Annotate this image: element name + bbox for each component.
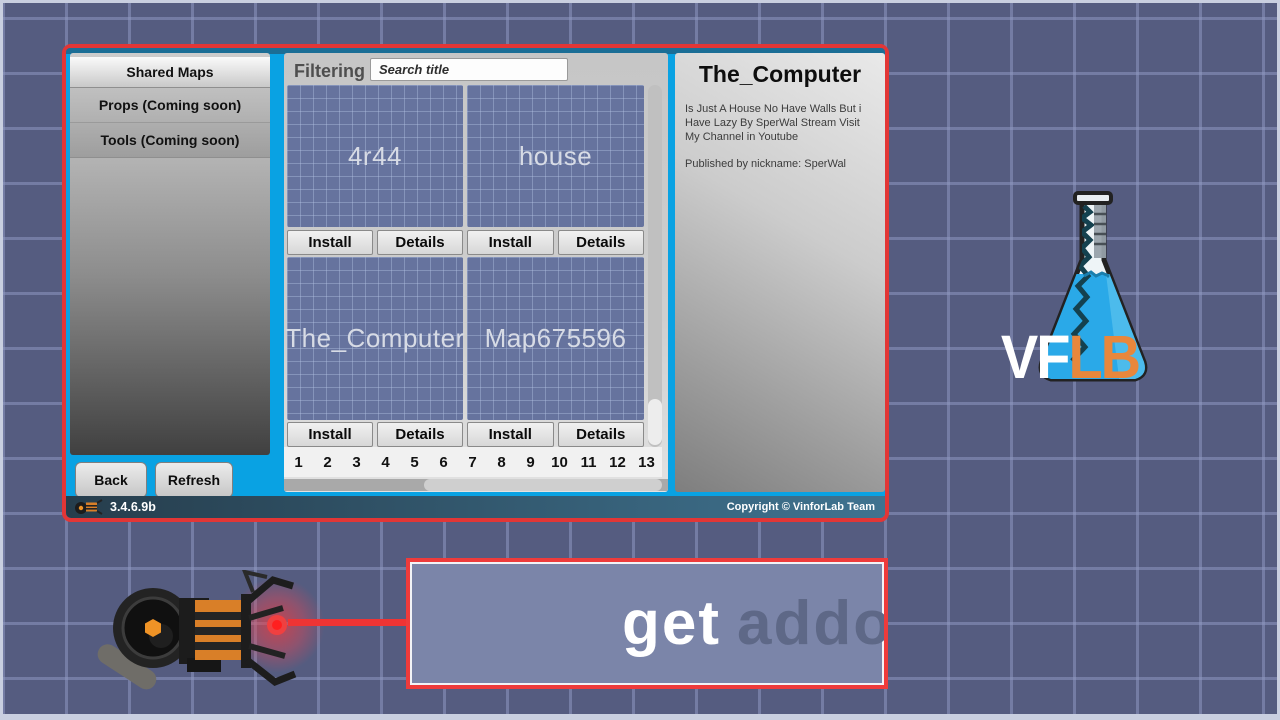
map-details-title: The_Computer <box>675 61 885 88</box>
horizontal-scrollbar-thumb[interactable] <box>424 479 662 491</box>
details-button[interactable]: Details <box>558 230 645 255</box>
page-number[interactable]: 9 <box>516 454 545 471</box>
details-button[interactable]: Details <box>377 230 463 255</box>
logo-letters-vf: VF <box>1001 322 1069 391</box>
gravity-gun-tool <box>95 570 305 695</box>
description-line: Have Lazy By SperWal Stream Visit <box>685 116 875 130</box>
map-title: house <box>519 141 592 172</box>
map-card-thumbnail[interactable]: The_Computer <box>287 257 463 420</box>
page-number[interactable]: 3 <box>342 454 371 471</box>
addons-dialog: Shared Maps Props (Coming soon) Tools (C… <box>62 44 889 522</box>
gravity-gun-icon <box>74 498 104 516</box>
game-background: Shared Maps Props (Coming soon) Tools (C… <box>0 0 1280 720</box>
sidebar-item-props[interactable]: Props (Coming soon) <box>70 88 270 123</box>
page-number[interactable]: 4 <box>371 454 400 471</box>
get-addons-tooltip: get addons <box>406 558 888 689</box>
vflb-logo-text: VFLB <box>985 324 1155 390</box>
sidebar: Shared Maps Props (Coming soon) Tools (C… <box>70 53 270 455</box>
page-number[interactable]: 14 <box>661 454 662 471</box>
version-label: 3.4.6.9b <box>110 496 156 518</box>
search-input[interactable] <box>370 58 568 81</box>
laser-beam <box>288 619 408 626</box>
vertical-scrollbar[interactable] <box>648 85 662 447</box>
page-number[interactable]: 12 <box>603 454 632 471</box>
page-number[interactable]: 8 <box>487 454 516 471</box>
page-number[interactable]: 6 <box>429 454 458 471</box>
map-title: 4r44 <box>348 141 402 172</box>
tooltip-text-primary: get <box>622 588 721 659</box>
install-button[interactable]: Install <box>467 422 554 447</box>
details-button[interactable]: Details <box>558 422 645 447</box>
page-number[interactable]: 13 <box>632 454 661 471</box>
install-button[interactable]: Install <box>467 230 554 255</box>
page-number[interactable]: 5 <box>400 454 429 471</box>
map-card-thumbnail[interactable]: 4r44 <box>287 85 463 227</box>
filtering-label: Filtering <box>294 61 365 82</box>
back-button[interactable]: Back <box>75 462 147 498</box>
vertical-scrollbar-thumb[interactable] <box>648 399 662 445</box>
install-button[interactable]: Install <box>287 422 373 447</box>
description-line: Is Just A House No Have Walls But i <box>685 102 875 116</box>
map-card-thumbnail[interactable]: house <box>467 85 644 227</box>
map-title: The_Computer <box>285 323 464 354</box>
page-number[interactable]: 2 <box>313 454 342 471</box>
map-title: Map675596 <box>485 323 627 354</box>
map-card-thumbnail[interactable]: Map675596 <box>467 257 644 420</box>
logo-letters-lb: LB <box>1068 322 1139 391</box>
sidebar-item-tools[interactable]: Tools (Coming soon) <box>70 123 270 158</box>
tooltip-text-secondary: addons <box>737 588 888 659</box>
horizontal-scrollbar[interactable] <box>284 479 668 491</box>
page-number[interactable]: 11 <box>574 454 603 471</box>
page-number[interactable]: 1 <box>284 454 313 471</box>
published-by-label: Published by nickname: SperWal <box>685 158 875 170</box>
details-button[interactable]: Details <box>377 422 463 447</box>
refresh-button[interactable]: Refresh <box>155 462 233 498</box>
page-number[interactable]: 10 <box>545 454 574 471</box>
map-description: Is Just A House No Have Walls But i Have… <box>685 102 875 144</box>
maps-browser: Filtering 4r44 house Install Details Ins… <box>284 53 668 492</box>
install-button[interactable]: Install <box>287 230 373 255</box>
description-line: My Channel in Youtube <box>685 130 875 144</box>
details-panel: The_Computer Is Just A House No Have Wal… <box>675 53 885 492</box>
status-bar: 3.4.6.9b Copyright © VinforLab Team <box>66 496 885 518</box>
copyright-label: Copyright © VinforLab Team <box>727 496 875 518</box>
page-number[interactable]: 7 <box>458 454 487 471</box>
sidebar-item-shared-maps[interactable]: Shared Maps <box>70 57 270 88</box>
pagination: 1 2 3 4 5 6 7 8 9 10 11 12 13 14 <box>284 447 662 477</box>
